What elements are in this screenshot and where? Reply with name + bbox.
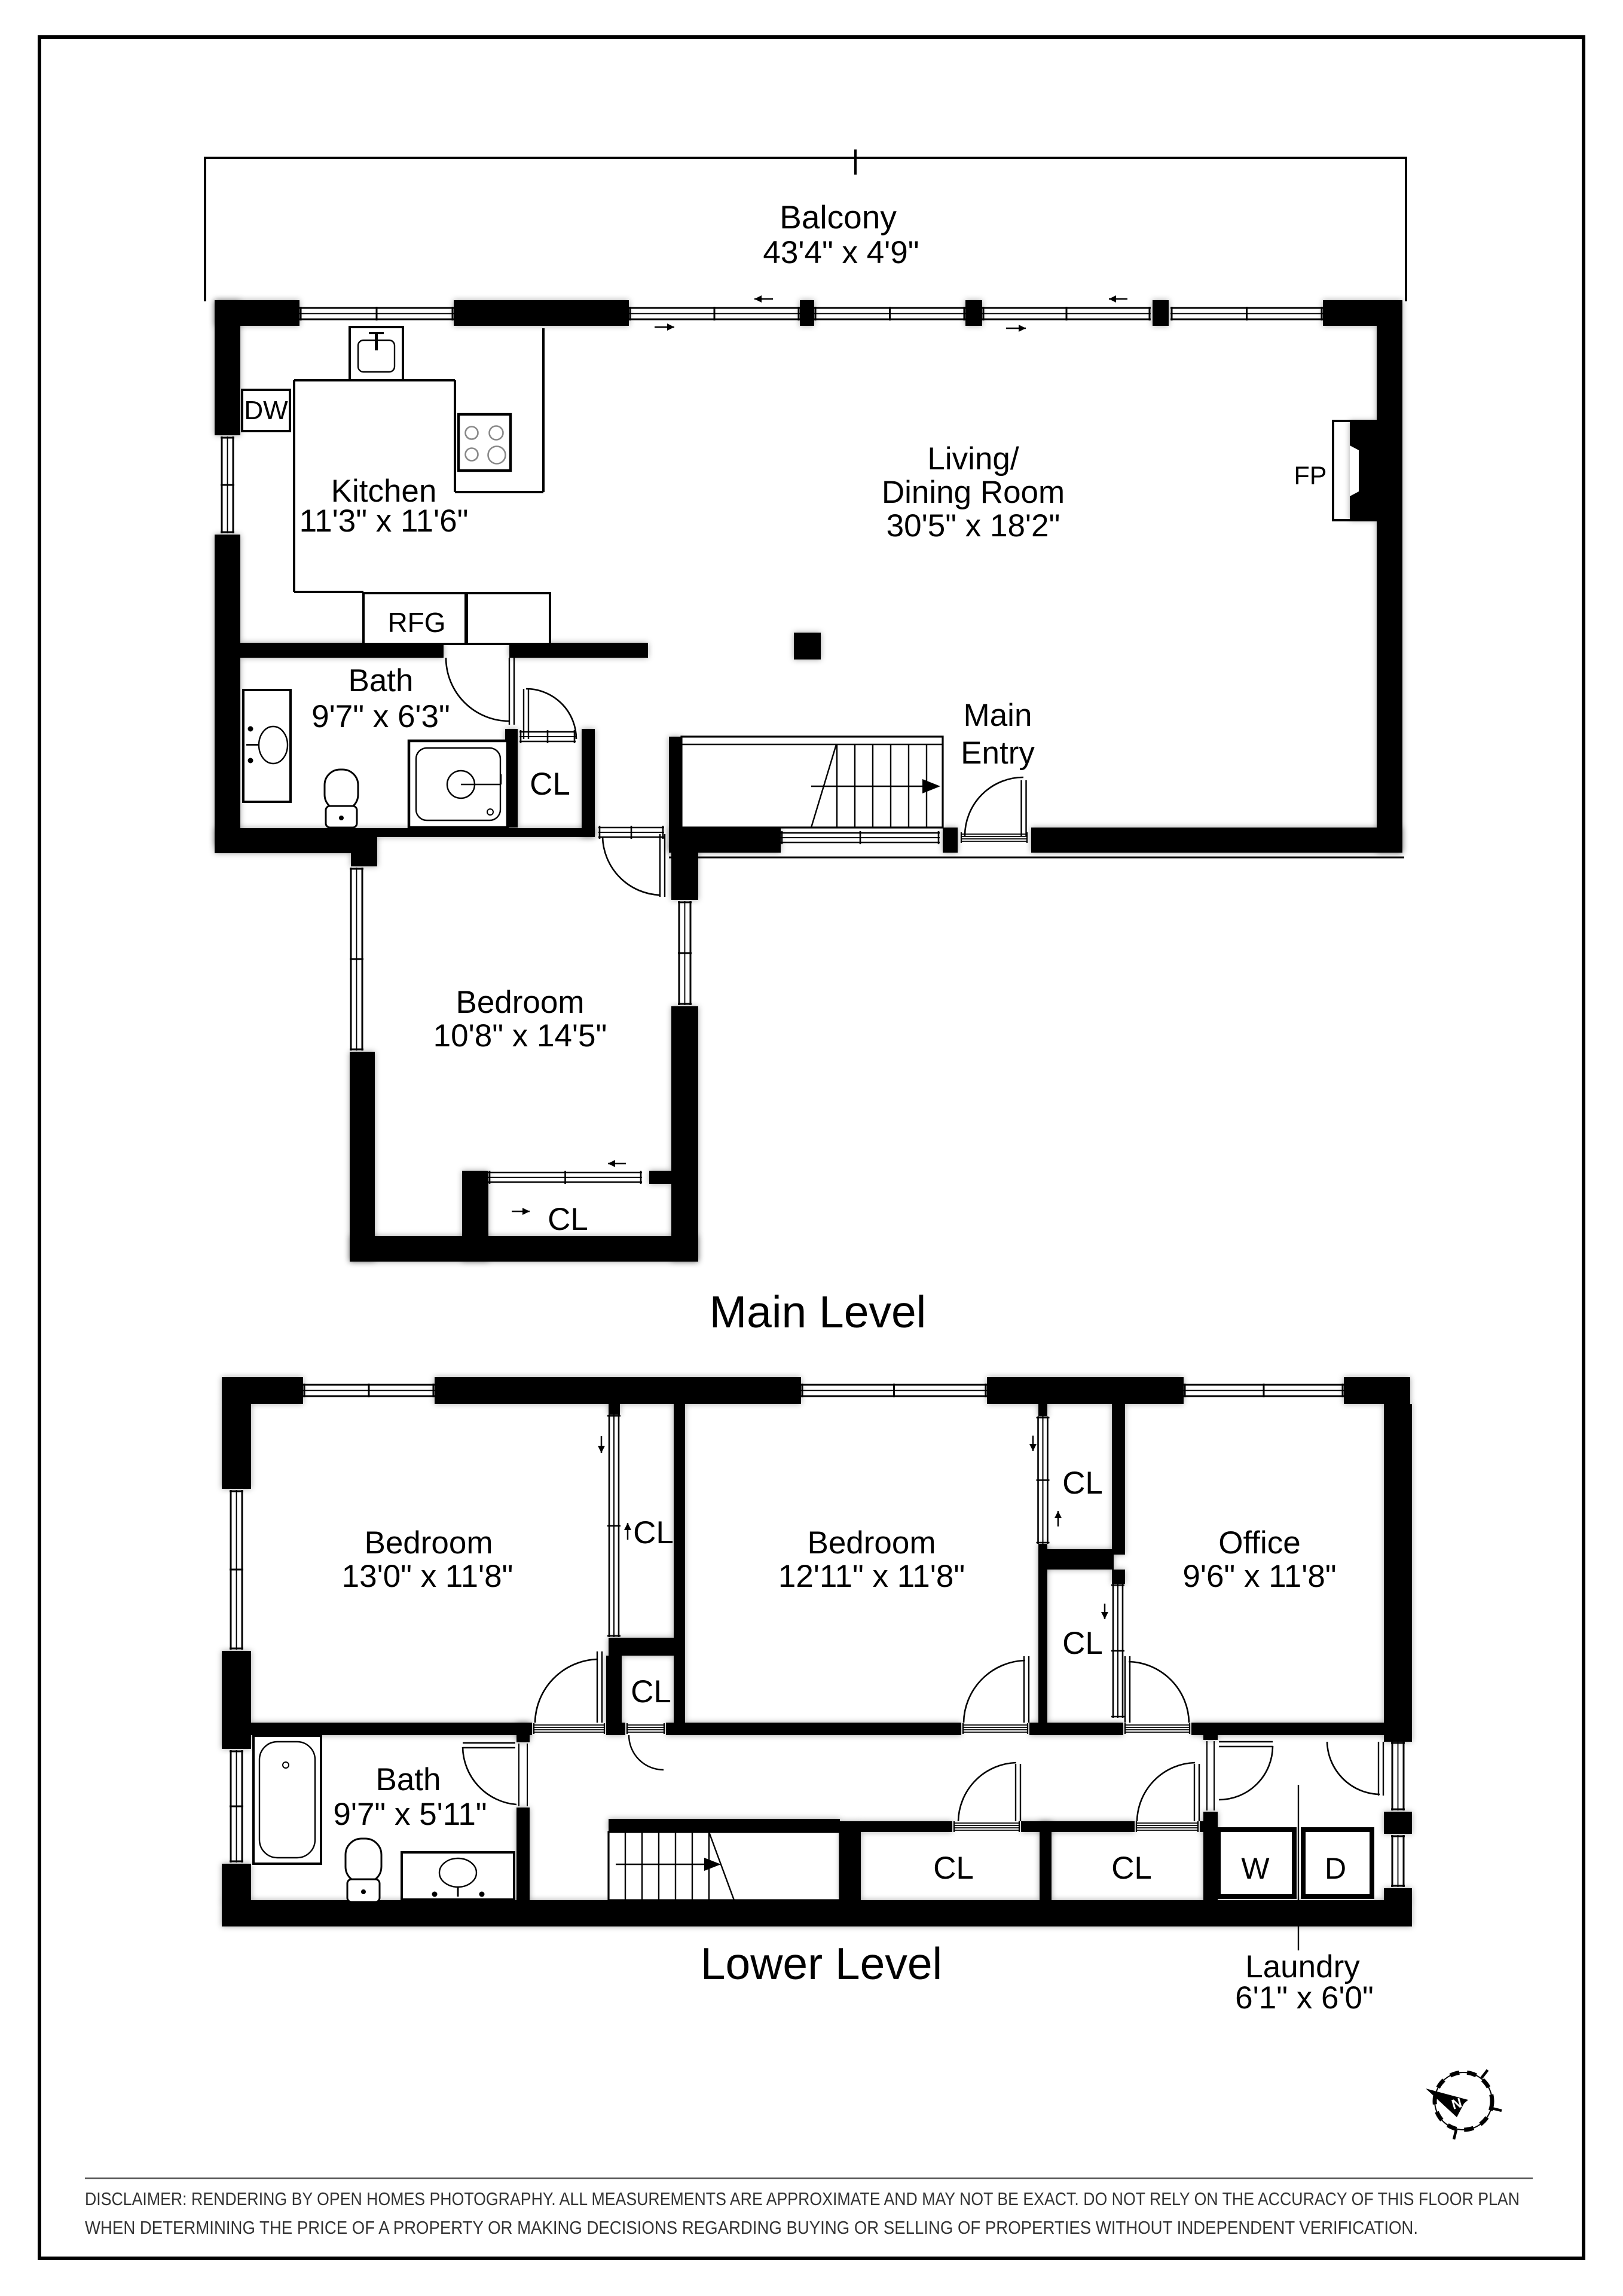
svg-text:Living/: Living/ [927, 441, 1019, 477]
svg-text:Bath: Bath [348, 663, 413, 698]
svg-text:Main: Main [964, 698, 1032, 733]
svg-text:Balcony: Balcony [780, 199, 897, 236]
svg-text:DW: DW [244, 396, 288, 425]
svg-text:Bedroom: Bedroom [364, 1525, 493, 1561]
svg-text:Bedroom: Bedroom [456, 985, 584, 1020]
svg-text:CL: CL [1062, 1465, 1103, 1501]
svg-text:CL: CL [530, 767, 570, 802]
svg-text:W: W [1241, 1852, 1270, 1885]
svg-text:30'5" x 18'2": 30'5" x 18'2" [887, 508, 1060, 544]
svg-text:Bedroom: Bedroom [807, 1525, 936, 1561]
svg-text:CL: CL [548, 1202, 588, 1237]
svg-text:CL: CL [631, 1674, 671, 1709]
svg-text:Dining Room: Dining Room [882, 475, 1065, 510]
svg-text:CL: CL [1062, 1626, 1103, 1661]
svg-text:WHEN DETERMINING THE PRICE OF: WHEN DETERMINING THE PRICE OF A PROPERTY… [85, 2217, 1418, 2238]
svg-text:CL: CL [933, 1851, 974, 1886]
svg-text:10'8" x 14'5": 10'8" x 14'5" [433, 1018, 607, 1054]
svg-text:CL: CL [633, 1515, 674, 1550]
svg-text:CL: CL [1111, 1851, 1152, 1886]
svg-text:9'7" x 5'11": 9'7" x 5'11" [333, 1797, 487, 1832]
svg-text:Bath: Bath [375, 1762, 441, 1797]
svg-text:Main Level: Main Level [710, 1287, 927, 1337]
svg-text:Laundry: Laundry [1245, 1949, 1360, 1984]
svg-text:11'3" x 11'6": 11'3" x 11'6" [299, 503, 469, 539]
svg-text:Lower Level: Lower Level [701, 1938, 942, 1989]
svg-text:6'1" x 6'0": 6'1" x 6'0" [1235, 1980, 1374, 2016]
svg-text:9'7" x 6'3": 9'7" x 6'3" [311, 699, 450, 734]
svg-text:13'0" x 11'8": 13'0" x 11'8" [342, 1559, 514, 1594]
svg-text:Entry: Entry [961, 735, 1035, 771]
svg-text:RFG: RFG [387, 607, 445, 638]
svg-text:DISCLAIMER: RENDERING BY OPEN: DISCLAIMER: RENDERING BY OPEN HOMES PHOT… [85, 2188, 1520, 2209]
svg-text:FP: FP [1294, 462, 1327, 490]
svg-text:12'11" x 11'8": 12'11" x 11'8" [778, 1559, 965, 1594]
svg-text:Office: Office [1218, 1525, 1300, 1561]
svg-text:43'4" x 4'9": 43'4" x 4'9" [763, 235, 919, 270]
svg-text:D: D [1325, 1852, 1346, 1885]
svg-text:9'6" x 11'8": 9'6" x 11'8" [1182, 1559, 1336, 1594]
